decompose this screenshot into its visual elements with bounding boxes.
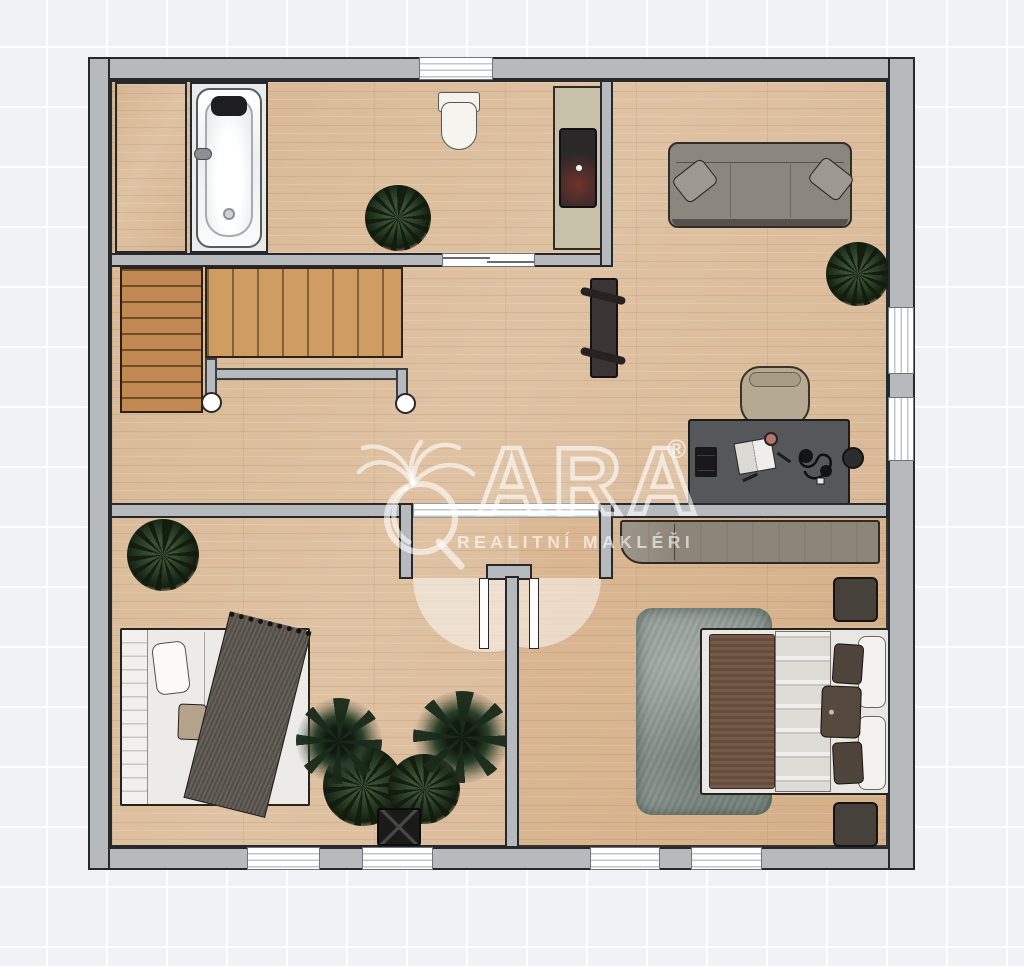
bed-right-pillow-dark bbox=[832, 643, 865, 685]
wall-mid-left bbox=[110, 503, 402, 518]
closet bbox=[115, 82, 187, 253]
wall-bathroom-south bbox=[110, 253, 613, 267]
window-right-1 bbox=[888, 307, 914, 374]
pillow-tassel bbox=[829, 710, 834, 715]
door-leaf-left bbox=[479, 578, 489, 649]
wall-bottom bbox=[88, 847, 915, 870]
machine-door-icon bbox=[576, 165, 582, 171]
wall-bathroom-east bbox=[600, 80, 613, 267]
wall-mid-right bbox=[612, 503, 888, 518]
bed-left-pillow-white bbox=[151, 640, 191, 696]
wall-bedroom-divider bbox=[505, 576, 519, 848]
bedroom-left-plant bbox=[127, 519, 199, 591]
sofa-seat-divider bbox=[790, 164, 791, 218]
bed-right-pillow-center bbox=[820, 685, 862, 738]
sofa-seat-divider bbox=[730, 164, 731, 218]
door-threshold bbox=[413, 503, 599, 518]
wall-top bbox=[88, 57, 915, 80]
door-jamb-right bbox=[599, 503, 613, 579]
bed-right-blanket-brown bbox=[709, 634, 775, 789]
cup bbox=[764, 432, 778, 446]
plant-pot bbox=[377, 808, 421, 846]
bathtub bbox=[196, 88, 262, 248]
bathtub-faucet-icon bbox=[194, 148, 212, 160]
window-bottom-2 bbox=[362, 847, 433, 870]
bed-right-pillow-dark bbox=[832, 741, 864, 785]
sideboard-divider bbox=[674, 524, 675, 560]
stair-newel-left bbox=[201, 392, 222, 413]
stair-newel-right bbox=[395, 393, 416, 414]
sofa-front-shadow bbox=[672, 219, 848, 226]
bathtub-headrest bbox=[211, 96, 247, 116]
stairs-lower-flight bbox=[120, 267, 203, 413]
plant-group-flower bbox=[296, 698, 382, 784]
laptop-line bbox=[697, 470, 715, 471]
living-room-plant bbox=[826, 242, 890, 306]
bathtub-drain bbox=[223, 208, 235, 220]
chair-backrest bbox=[749, 372, 801, 387]
window-bottom-3 bbox=[590, 847, 660, 870]
window-right-2 bbox=[888, 397, 914, 461]
bed-right bbox=[700, 628, 890, 795]
sideboard bbox=[620, 520, 880, 564]
window-bottom-1 bbox=[247, 847, 320, 870]
bed-left-headboard bbox=[122, 630, 148, 804]
headphones bbox=[795, 445, 841, 487]
nightstand-bottom bbox=[833, 802, 878, 847]
plant-group-flower bbox=[413, 691, 511, 783]
nightstand-top bbox=[833, 577, 878, 622]
wall-left bbox=[88, 57, 110, 870]
laptop bbox=[695, 447, 717, 477]
sliding-door-panel bbox=[487, 261, 534, 263]
laptop-line bbox=[697, 455, 715, 456]
decorative-plate bbox=[842, 447, 864, 469]
stair-railing-bar bbox=[215, 368, 400, 380]
sliding-door-panel bbox=[443, 257, 490, 259]
sofa-pillow-left bbox=[671, 157, 719, 204]
floorplan-canvas: ARA ® REALITNÍ MAKLÉŘI bbox=[0, 0, 1024, 966]
wall-right bbox=[888, 57, 915, 870]
toilet-bowl bbox=[441, 102, 477, 150]
door-jamb-left bbox=[399, 503, 413, 579]
sofa bbox=[668, 142, 852, 228]
stairs-upper-flight bbox=[205, 267, 403, 358]
washing-machine bbox=[559, 128, 597, 208]
door-leaf-right bbox=[529, 578, 539, 649]
bathroom-plant bbox=[365, 185, 431, 251]
toilet bbox=[438, 92, 480, 150]
window-top bbox=[419, 57, 493, 80]
sliding-door-bathroom[interactable] bbox=[442, 253, 535, 267]
window-bottom-4 bbox=[691, 847, 762, 870]
